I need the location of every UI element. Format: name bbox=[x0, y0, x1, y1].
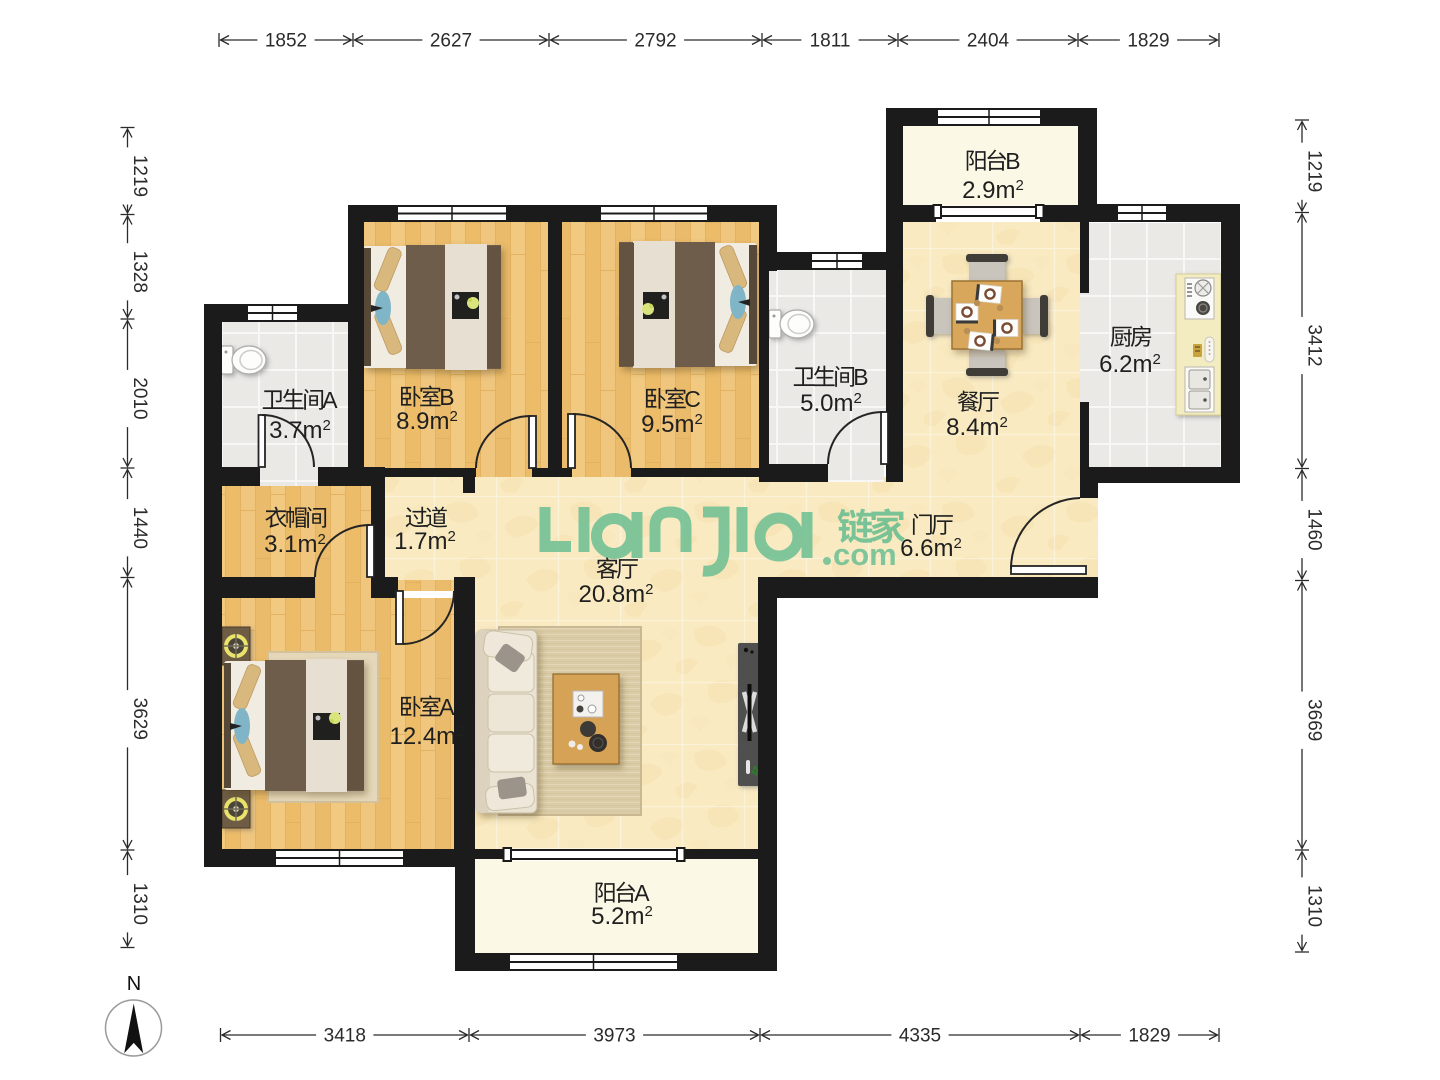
svg-text:1811: 1811 bbox=[810, 31, 851, 52]
svg-text:3973: 3973 bbox=[593, 1026, 635, 1047]
svg-text:1328: 1328 bbox=[129, 251, 150, 293]
svg-text:2.9m2: 2.9m2 bbox=[962, 177, 1024, 204]
svg-text:3.1m2: 3.1m2 bbox=[264, 531, 326, 558]
svg-text:1829: 1829 bbox=[1128, 1026, 1170, 1047]
svg-text:3669: 3669 bbox=[1304, 699, 1325, 741]
svg-text:1829: 1829 bbox=[1127, 31, 1169, 52]
svg-text:B: B bbox=[853, 364, 868, 390]
svg-text:2792: 2792 bbox=[634, 31, 676, 52]
svg-text:8.4m2: 8.4m2 bbox=[946, 414, 1008, 441]
svg-text:8.9m2: 8.9m2 bbox=[396, 408, 458, 435]
svg-text:4335: 4335 bbox=[899, 1026, 941, 1047]
svg-text:3.7m2: 3.7m2 bbox=[269, 417, 331, 444]
svg-text:5.2m2: 5.2m2 bbox=[591, 903, 653, 930]
svg-text:6.2m2: 6.2m2 bbox=[1099, 351, 1161, 378]
svg-text:1219: 1219 bbox=[129, 155, 150, 197]
svg-text:2404: 2404 bbox=[967, 31, 1010, 52]
svg-text:3412: 3412 bbox=[1304, 324, 1325, 366]
svg-text:C: C bbox=[684, 386, 701, 412]
svg-text:1460: 1460 bbox=[1304, 508, 1325, 550]
svg-text:1310: 1310 bbox=[1304, 885, 1325, 927]
svg-text:2627: 2627 bbox=[430, 31, 472, 52]
svg-text:A: A bbox=[439, 694, 455, 720]
svg-text:2010: 2010 bbox=[129, 377, 150, 419]
svg-text:B: B bbox=[439, 384, 454, 410]
svg-text:N: N bbox=[127, 973, 141, 995]
svg-text:1852: 1852 bbox=[265, 31, 307, 52]
svg-text:1.7m2: 1.7m2 bbox=[394, 528, 456, 555]
svg-text:20.8m2: 20.8m2 bbox=[578, 581, 653, 608]
svg-text:1440: 1440 bbox=[129, 507, 150, 549]
svg-text:12.4m2: 12.4m2 bbox=[389, 723, 464, 750]
svg-text:9.5m2: 9.5m2 bbox=[641, 411, 703, 438]
svg-text:3418: 3418 bbox=[324, 1026, 366, 1047]
svg-text:B: B bbox=[1005, 148, 1020, 174]
svg-text:1219: 1219 bbox=[1304, 150, 1325, 192]
svg-text:5.0m2: 5.0m2 bbox=[800, 390, 862, 417]
svg-text:1310: 1310 bbox=[129, 883, 150, 925]
svg-text:com: com bbox=[833, 537, 897, 572]
svg-text:6.6m2: 6.6m2 bbox=[900, 535, 962, 562]
svg-text:3629: 3629 bbox=[129, 698, 150, 740]
svg-text:A: A bbox=[322, 387, 338, 413]
